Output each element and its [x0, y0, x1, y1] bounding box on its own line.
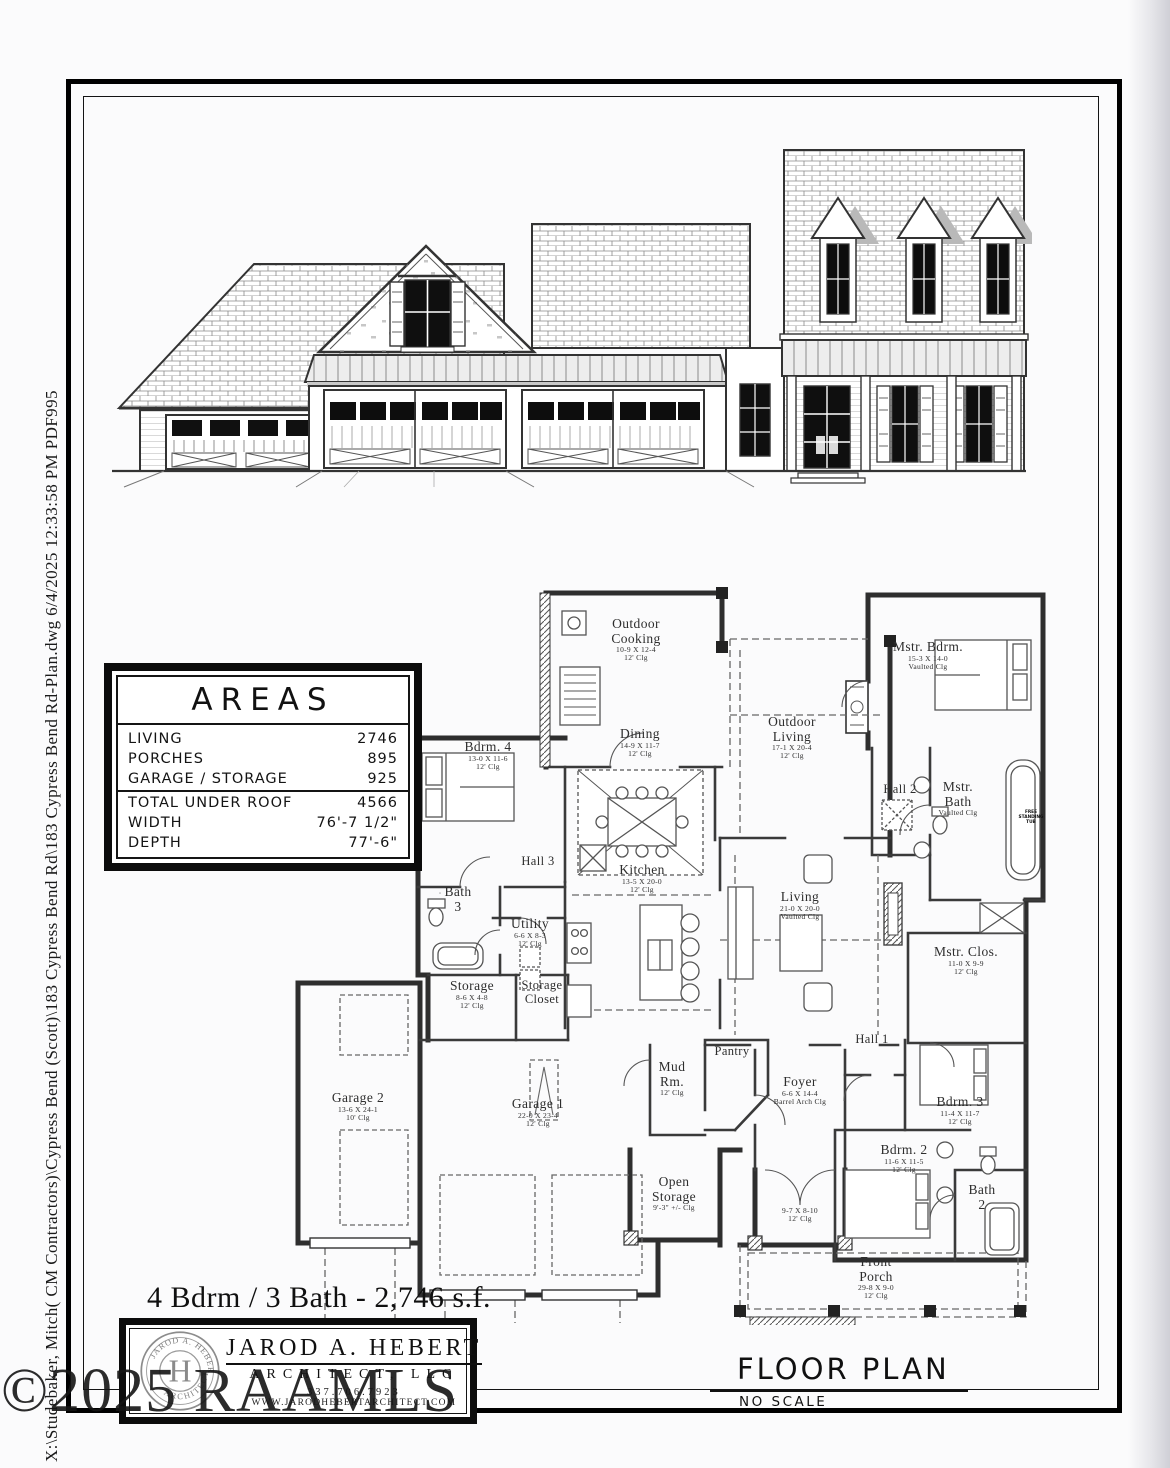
room-label-dining: Dining14-9 X 11-712' Clg: [620, 727, 660, 758]
summary-title: 4 Bdrm / 3 Bath - 2,746 s.f.: [147, 1281, 491, 1315]
areas-table: AREAS LIVING2746 PORCHES895 GARAGE / STO…: [104, 663, 422, 871]
areas-row-width: WIDTH76'-7 1/2": [118, 815, 408, 831]
front-elevation-svg: [104, 136, 1032, 488]
room-label-hall-3: Hall 3: [521, 855, 554, 869]
room-label-hall-1: Hall 1: [855, 1033, 888, 1047]
areas-row-garage-storage: GARAGE / STORAGE925: [118, 771, 408, 787]
room-label-bdrm-2: Bdrm. 211-6 X 11-512' Clg: [880, 1143, 927, 1174]
room-label-outdoor-cooking: OutdoorCooking10-9 X 12-412' Clg: [611, 617, 660, 662]
floor-plan-scale: NO SCALE: [739, 1394, 827, 1410]
room-label-bath-3: Bath3: [444, 885, 471, 914]
room-label-mud-rm: MudRm.12' Clg: [659, 1060, 686, 1097]
room-label-storage-closet: StorageCloset: [522, 979, 563, 1006]
areas-row-porches: PORCHES895: [118, 751, 408, 767]
room-label-garage-1: Garage 122-0 X 23-412' Clg: [512, 1097, 564, 1128]
room-label-entry-porch: 9-7 X 8-1012' Clg: [782, 1207, 818, 1223]
room-label-mstr-bath: Mstr.BathVaulted Clg: [939, 780, 978, 817]
room-label-living: Living21-0 X 20-0Vaulted Clg: [780, 890, 820, 921]
areas-row-total: TOTAL UNDER ROOF4566: [118, 790, 408, 811]
floor-plan-title-rule: [710, 1390, 968, 1392]
room-label-storage: Storage8-6 X 4-812' Clg: [450, 979, 494, 1010]
front-elevation-drawing: [104, 136, 1032, 488]
scan-page-edge: [1128, 0, 1170, 1468]
room-label-foyer: Foyer6-6 X 14-4Barrel Arch Clg: [774, 1075, 826, 1106]
areas-row-living: LIVING2746: [118, 731, 408, 747]
room-label-front-porch: FrontPorch29-8 X 9-012' Clg: [858, 1255, 894, 1300]
room-label-outdoor-living: OutdoorLiving17-1 X 20-412' Clg: [768, 715, 816, 760]
room-label-bdrm-4: Bdrm. 413-0 X 11-612' Clg: [464, 740, 511, 771]
room-label-garage-2: Garage 213-6 X 24-110' Clg: [332, 1091, 384, 1122]
room-label-open-storage: OpenStorage9'-3" +/- Clg: [652, 1175, 696, 1212]
floor-plan-title: FLOOR PLAN: [737, 1352, 950, 1386]
room-label-bdrm-3: Bdrm. 311-4 X 11-712' Clg: [936, 1095, 983, 1126]
areas-table-title: AREAS: [118, 677, 408, 725]
architectural-sheet: { "file_info": "X:\\Studebaker, Mitch( C…: [0, 0, 1170, 1468]
room-label-bath-2: Bath2: [968, 1183, 995, 1212]
room-label-kitchen: Kitchen13-5 X 20-012' Clg: [619, 863, 665, 894]
room-label-mstr-clos: Mstr. Clos.11-0 X 9-912' Clg: [934, 945, 998, 976]
room-label-hall-2: Hall 2: [883, 783, 916, 797]
mls-watermark: ©2025 RAAMLS: [1, 1356, 458, 1427]
room-label-mstr-bdrm: Mstr. Bdrm.15-3 X 14-0Vaulted Clg: [893, 640, 963, 671]
file-path-text: X:\Studebaker, Mitch( CM Contractors)\Cy…: [42, 237, 62, 1462]
room-label-utility: Utility6-6 X 8-312' Clg: [511, 917, 549, 948]
areas-row-depth: DEPTH77'-6": [118, 835, 408, 851]
free-standing-tub-note: FREE STANDING TUB: [1018, 811, 1044, 826]
room-label-pantry: Pantry: [714, 1045, 749, 1059]
